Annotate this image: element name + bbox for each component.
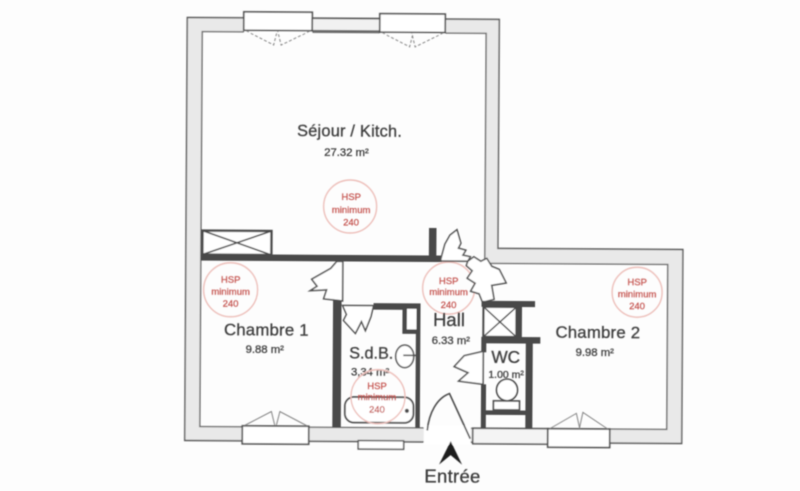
- svg-text:S.d.B.: S.d.B.: [349, 344, 393, 362]
- svg-text:27.32 m²: 27.32 m²: [324, 147, 369, 159]
- svg-text:minimum: minimum: [358, 392, 397, 403]
- svg-text:240: 240: [369, 405, 385, 416]
- svg-text:HSP: HSP: [341, 192, 361, 203]
- svg-text:HSP: HSP: [367, 381, 387, 392]
- svg-text:1.00 m²: 1.00 m²: [488, 369, 524, 381]
- svg-text:HSP: HSP: [627, 277, 647, 288]
- svg-text:240: 240: [343, 217, 359, 228]
- svg-text:minimum: minimum: [332, 205, 371, 216]
- svg-text:minimum: minimum: [618, 289, 657, 300]
- svg-text:3,34 m²: 3,34 m²: [351, 366, 390, 378]
- svg-text:240: 240: [223, 299, 239, 310]
- svg-text:6.33 m²: 6.33 m²: [432, 335, 471, 347]
- svg-text:9.98 m²: 9.98 m²: [576, 347, 615, 359]
- svg-text:Hall: Hall: [433, 309, 465, 330]
- svg-text:minimum: minimum: [211, 287, 250, 298]
- svg-text:WC: WC: [491, 347, 520, 367]
- svg-text:9.88 m²: 9.88 m²: [246, 344, 285, 356]
- svg-text:HSP: HSP: [439, 276, 459, 287]
- svg-text:Séjour / Kitch.: Séjour / Kitch.: [297, 122, 402, 141]
- svg-text:Chambre 1: Chambre 1: [224, 320, 309, 340]
- svg-text:minimum: minimum: [429, 287, 468, 298]
- svg-text:240: 240: [629, 301, 645, 312]
- svg-text:Entrée: Entrée: [424, 465, 480, 486]
- svg-text:Chambre 2: Chambre 2: [555, 323, 640, 343]
- svg-text:HSP: HSP: [221, 275, 241, 286]
